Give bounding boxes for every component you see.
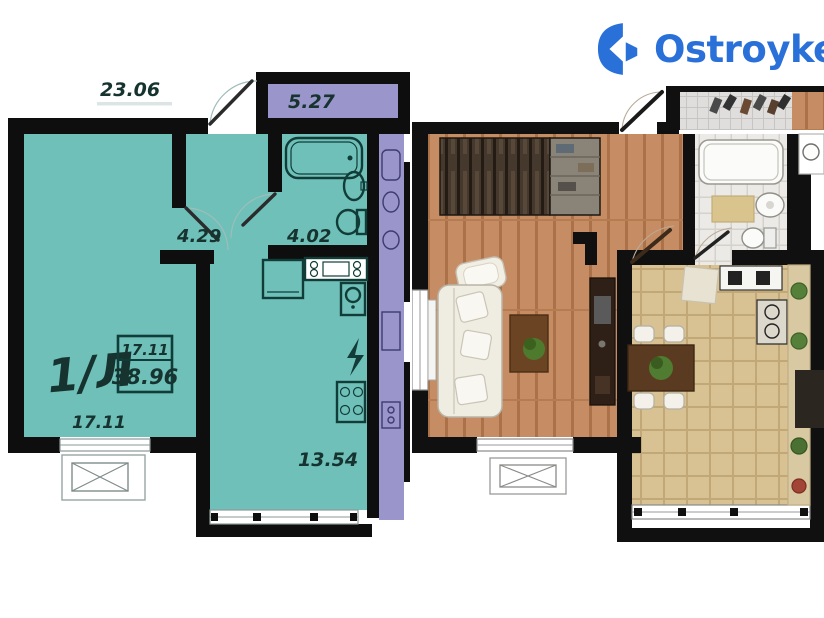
coffee-table bbox=[510, 315, 548, 372]
dim-kitchen: 13.54 bbox=[298, 449, 358, 471]
schematic-floor-plan: 23.06 5.27 4.29 4.02 17.11 13.54 1/Л 17.… bbox=[5, 72, 410, 537]
dim-bathroom: 4.02 bbox=[286, 226, 331, 247]
area-table-total: 38.96 bbox=[112, 365, 178, 389]
dim-living-room: 17.11 bbox=[72, 413, 126, 433]
living-bottom-window bbox=[477, 439, 573, 451]
render-ac-unit bbox=[490, 458, 566, 494]
dim-top-width: 23.06 bbox=[100, 79, 160, 101]
bath-mat bbox=[712, 196, 754, 222]
kitchen-stool bbox=[681, 266, 718, 303]
rendered-floor-plan bbox=[412, 86, 824, 546]
tv-cabinet bbox=[590, 278, 615, 405]
corner-sink bbox=[799, 134, 824, 174]
bathtub-render bbox=[699, 140, 783, 184]
dim-hallway: 4.29 bbox=[176, 226, 221, 247]
cooktop bbox=[720, 266, 782, 290]
entrance-door-leaf bbox=[210, 81, 252, 124]
wardrobe bbox=[440, 138, 600, 215]
area-table-living: 17.11 bbox=[121, 341, 168, 359]
kitchen-balcony-window bbox=[632, 505, 810, 519]
toilet-render bbox=[742, 228, 776, 248]
counter-sink-symbol bbox=[305, 258, 367, 280]
kitchen-window bbox=[210, 510, 358, 524]
balcony-ac-unit bbox=[62, 455, 145, 500]
sofa bbox=[438, 285, 502, 417]
ostroyke-logo: Ostroyke bbox=[597, 22, 824, 76]
living-left-window bbox=[412, 290, 436, 390]
dim-corridor: 5.27 bbox=[288, 91, 336, 113]
sink-render bbox=[756, 193, 784, 217]
ostroyke-logo-icon bbox=[597, 22, 643, 76]
living-room-window bbox=[60, 439, 150, 451]
ostroyke-logo-text: Ostroyke bbox=[654, 28, 824, 71]
kitchen-fill bbox=[210, 259, 367, 510]
stove-render bbox=[757, 300, 787, 344]
screenshot-canvas: Ostroyke bbox=[0, 0, 824, 618]
kitchen-fridge bbox=[795, 370, 824, 428]
